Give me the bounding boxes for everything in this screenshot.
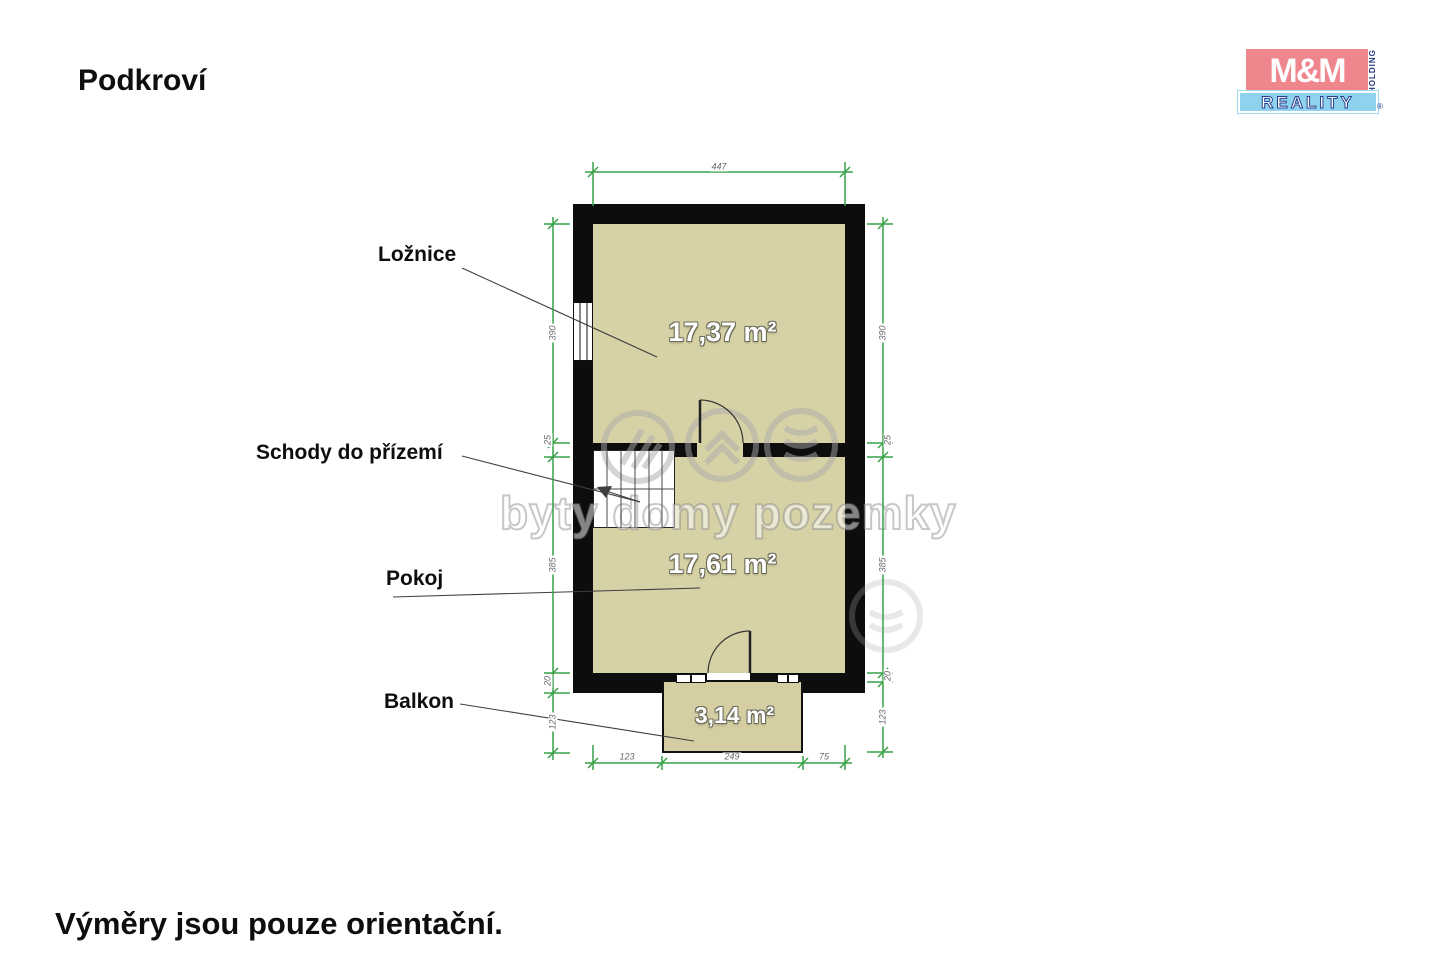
dim-top: 447: [709, 163, 728, 172]
label-loznice: Ložnice: [378, 243, 456, 267]
dim-left-2: 25: [544, 433, 553, 447]
dim-left-4: 20: [544, 674, 553, 688]
dimension-lines: [544, 162, 893, 770]
floorplan-page: Podkroví Výměry jsou pouze orientační. M…: [0, 0, 1440, 960]
dim-left-1: 390: [549, 323, 558, 342]
label-pokoj: Pokoj: [386, 567, 443, 591]
dim-left-5: 123: [549, 712, 558, 731]
leader-schody: [462, 456, 640, 502]
dim-right-4: 20: [884, 669, 893, 683]
dim-bottom-2: 249: [722, 753, 741, 762]
dim-bottom-1: 123: [617, 753, 636, 762]
balcony-door: [708, 631, 750, 673]
bedroom-door: [700, 400, 743, 443]
dim-right-1: 390: [879, 323, 888, 342]
plan-linework: [0, 0, 1440, 960]
leader-balkon: [460, 704, 694, 741]
dim-bottom-3: 75: [817, 753, 831, 762]
area-pokoj: 17,61 m²: [650, 549, 795, 580]
label-balkon: Balkon: [384, 690, 454, 714]
area-balkon: 3,14 m²: [672, 702, 797, 729]
label-schody: Schody do přízemí: [256, 441, 443, 465]
dim-left-3: 385: [549, 555, 558, 574]
dim-right-5: 123: [879, 707, 888, 726]
leader-loznice: [462, 268, 657, 357]
window-mullions: [580, 302, 587, 361]
dim-right-3: 385: [879, 555, 888, 574]
dim-right-2: 25: [884, 433, 893, 447]
area-loznice: 17,37 m²: [650, 317, 795, 348]
